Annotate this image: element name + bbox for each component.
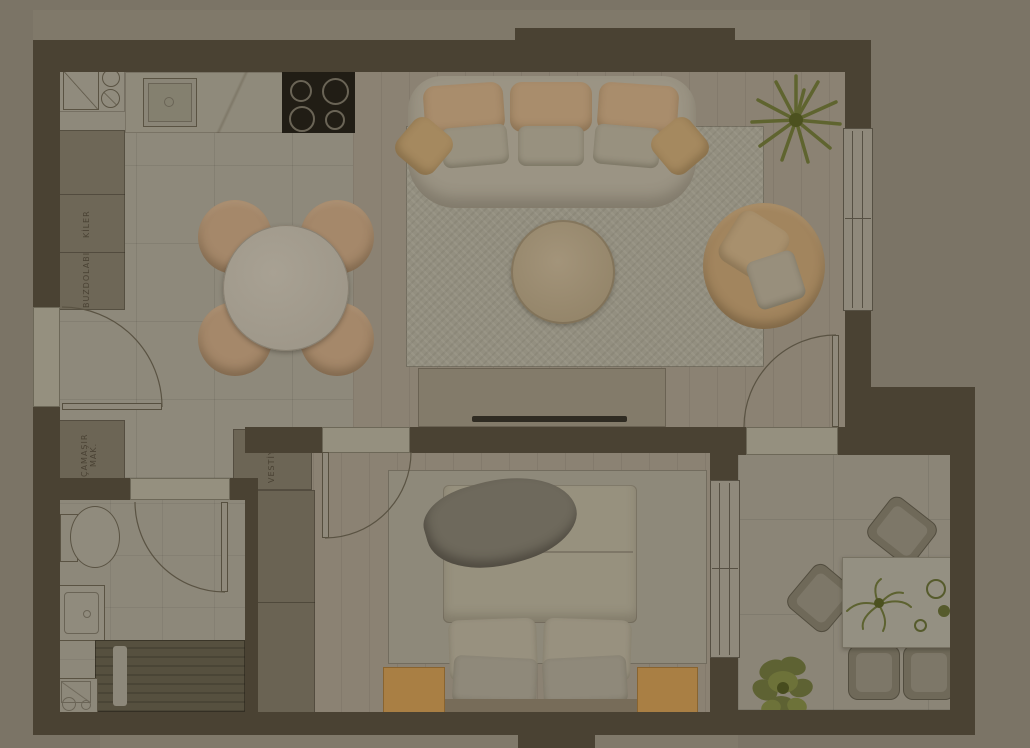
balcony-door-arc <box>744 335 836 427</box>
floor-plan-scene: KİLER BUZDOLABI ÇAMAŞIR MAK. VESTİYER <box>0 0 1030 748</box>
bedroom-door-arc <box>325 452 411 538</box>
door-swing-arcs <box>0 0 1030 748</box>
bathroom-door-arc <box>135 502 225 592</box>
entrance-door-arc <box>62 307 162 407</box>
